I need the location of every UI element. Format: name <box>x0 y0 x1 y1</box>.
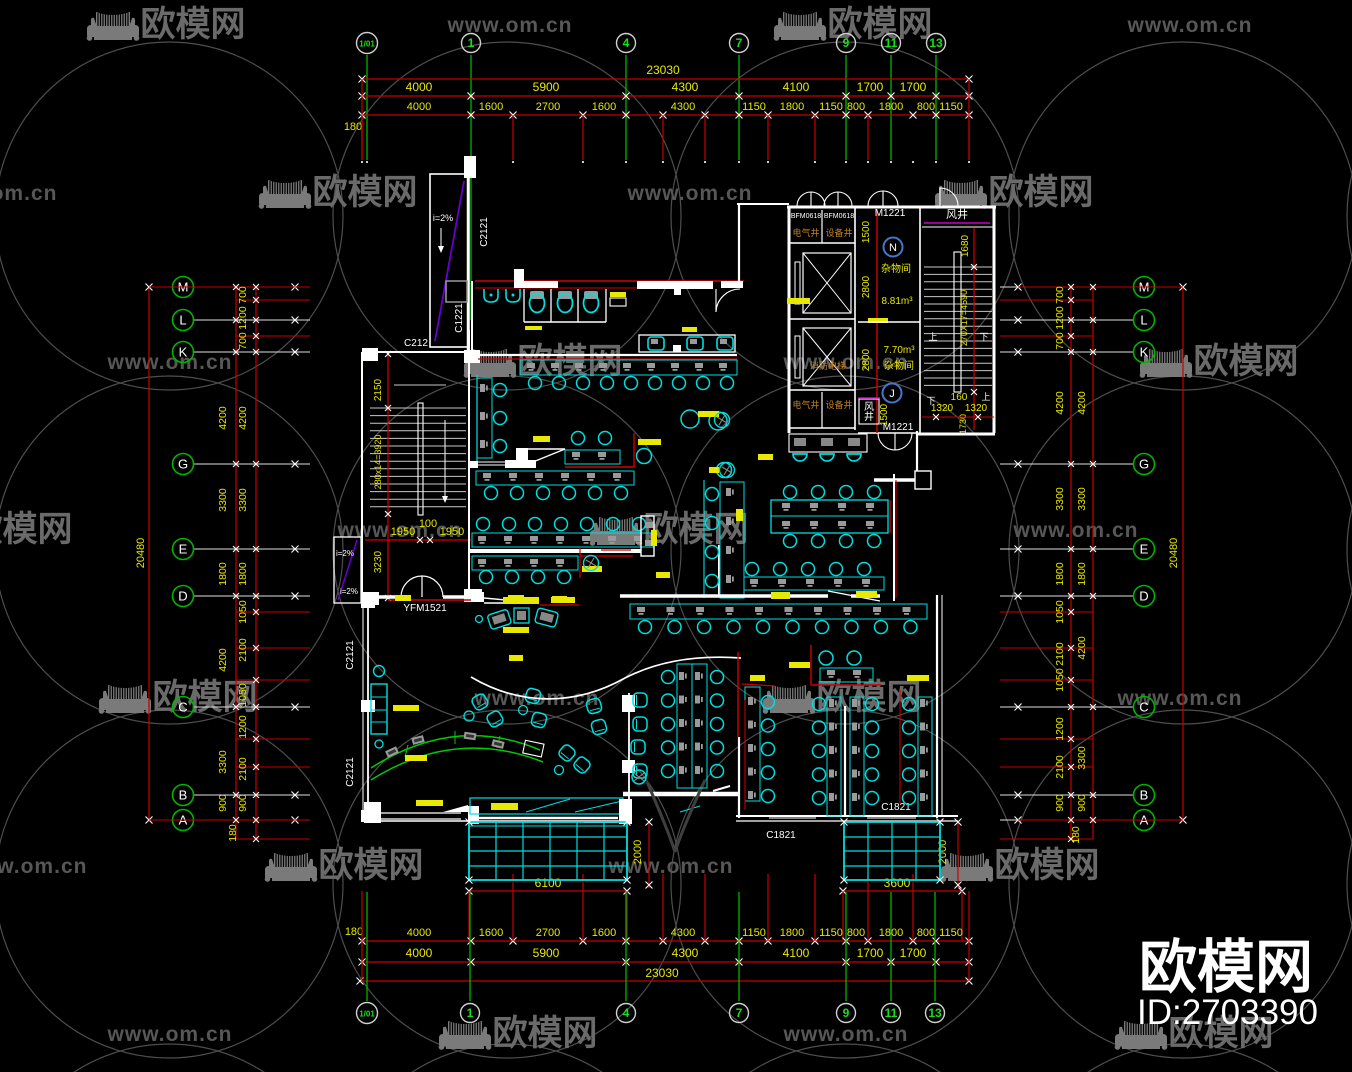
svg-text:700: 700 <box>1054 286 1066 304</box>
svg-text:1800: 1800 <box>780 927 804 939</box>
svg-text:1: 1 <box>467 1006 474 1020</box>
svg-text:风井: 风井 <box>946 207 968 221</box>
svg-text:1950: 1950 <box>391 526 415 538</box>
svg-text:4300: 4300 <box>671 927 695 939</box>
svg-text:1950: 1950 <box>440 526 464 538</box>
svg-text:3300: 3300 <box>1076 487 1088 511</box>
svg-text:杂物间: 杂物间 <box>884 359 914 372</box>
svg-text:欧模网: 欧模网 <box>492 1014 597 1053</box>
svg-text:1800: 1800 <box>780 101 804 113</box>
svg-text:1/01: 1/01 <box>359 40 375 49</box>
svg-text:上: 上 <box>981 392 990 402</box>
svg-text:180: 180 <box>1070 826 1082 844</box>
svg-text:www.om.cn: www.om.cn <box>107 351 233 374</box>
svg-text:www.om.cn: www.om.cn <box>1117 687 1243 710</box>
svg-text:4000: 4000 <box>406 80 433 94</box>
svg-text:2800: 2800 <box>861 348 872 371</box>
svg-text:800: 800 <box>847 927 865 939</box>
svg-text:1800: 1800 <box>1076 562 1088 586</box>
svg-text:180: 180 <box>345 926 363 938</box>
svg-text:900: 900 <box>217 794 229 812</box>
svg-text:1800: 1800 <box>237 562 249 586</box>
svg-text:设备井: 设备井 <box>825 399 852 410</box>
svg-text:www.om.cn: www.om.cn <box>447 14 573 37</box>
svg-text:3300: 3300 <box>237 488 249 512</box>
svg-text:700: 700 <box>237 332 249 350</box>
svg-text:1150: 1150 <box>742 101 766 113</box>
svg-text:1200: 1200 <box>1054 306 1066 330</box>
svg-text:3230: 3230 <box>373 550 384 573</box>
svg-text:i=2%: i=2% <box>340 587 358 596</box>
svg-text:280x14=3920: 280x14=3920 <box>373 435 383 490</box>
svg-text:1: 1 <box>468 36 475 50</box>
svg-text:4300: 4300 <box>671 101 695 113</box>
svg-text:1700: 1700 <box>857 80 884 94</box>
svg-text:1200: 1200 <box>237 306 249 330</box>
svg-text:1200: 1200 <box>1054 717 1066 741</box>
svg-text:2100: 2100 <box>1054 642 1066 666</box>
svg-text:www.om.cn: www.om.cn <box>1013 519 1139 542</box>
svg-text:欧模网: 欧模网 <box>1139 935 1313 1000</box>
svg-text:1800: 1800 <box>1054 562 1066 586</box>
svg-text:1150: 1150 <box>939 101 963 113</box>
svg-text:欧模网: 欧模网 <box>140 5 245 44</box>
svg-text:B: B <box>179 788 188 803</box>
svg-text:欧模网: 欧模网 <box>643 510 748 549</box>
svg-text:1600: 1600 <box>592 927 616 939</box>
svg-text:4000: 4000 <box>406 946 433 960</box>
svg-text:1050: 1050 <box>237 600 249 624</box>
svg-text:D: D <box>1139 589 1148 604</box>
svg-text:180: 180 <box>227 824 239 842</box>
svg-text:7: 7 <box>736 36 743 50</box>
svg-text:1150: 1150 <box>742 927 766 939</box>
svg-text:BFM0618: BFM0618 <box>824 213 854 220</box>
svg-text:3300: 3300 <box>217 488 229 512</box>
svg-text:上: 上 <box>928 332 937 342</box>
svg-text:1600: 1600 <box>479 927 503 939</box>
svg-text:2100: 2100 <box>1054 755 1066 779</box>
svg-text:9: 9 <box>843 1006 850 1020</box>
svg-text:700: 700 <box>237 286 249 304</box>
svg-text:K: K <box>179 345 188 360</box>
svg-text:4200: 4200 <box>217 406 229 430</box>
svg-text:4300: 4300 <box>672 946 699 960</box>
svg-text:900: 900 <box>1054 794 1066 812</box>
svg-text:9: 9 <box>843 36 850 50</box>
svg-text:4300: 4300 <box>672 80 699 94</box>
svg-text:11: 11 <box>885 36 898 50</box>
svg-text:4200: 4200 <box>217 648 229 672</box>
svg-text:C1821: C1821 <box>766 830 796 841</box>
svg-text:270X17=4590: 270X17=4590 <box>959 290 969 346</box>
svg-text:1050: 1050 <box>237 683 249 707</box>
svg-text:欧模网: 欧模网 <box>312 173 417 212</box>
svg-text:160: 160 <box>951 392 968 403</box>
svg-text:电气井: 电气井 <box>792 227 819 238</box>
svg-text:1050: 1050 <box>1054 668 1066 692</box>
svg-text:4000: 4000 <box>407 927 431 939</box>
svg-text:5900: 5900 <box>533 80 560 94</box>
svg-text:www.om.cn: www.om.cn <box>627 182 753 205</box>
svg-text:1700: 1700 <box>857 946 884 960</box>
svg-text:1600: 1600 <box>479 101 503 113</box>
svg-text:i=2%: i=2% <box>336 549 354 558</box>
svg-text:4200: 4200 <box>1054 391 1066 415</box>
svg-text:E: E <box>179 542 188 557</box>
svg-text:3600: 3600 <box>884 876 911 890</box>
svg-text:C: C <box>178 700 187 715</box>
svg-text:www.om.cn: www.om.cn <box>107 1023 233 1046</box>
svg-text:C1221: C1221 <box>454 303 465 333</box>
svg-text:2700: 2700 <box>536 101 560 113</box>
svg-text:4: 4 <box>623 1006 630 1020</box>
svg-text:1150: 1150 <box>939 927 963 939</box>
svg-text:下: 下 <box>979 332 988 342</box>
svg-text:L: L <box>179 313 186 328</box>
svg-text:设备井: 设备井 <box>825 227 852 238</box>
svg-text:1320: 1320 <box>931 403 954 414</box>
svg-text:1600: 1600 <box>592 101 616 113</box>
svg-text:4200: 4200 <box>1076 636 1088 660</box>
svg-text:C2121: C2121 <box>345 640 356 670</box>
svg-text:YFM1521: YFM1521 <box>403 603 447 614</box>
svg-text:2150: 2150 <box>373 378 384 401</box>
svg-text:电气井: 电气井 <box>792 399 819 410</box>
svg-text:C2121: C2121 <box>479 217 490 247</box>
svg-text:1150: 1150 <box>819 101 843 113</box>
svg-text:www.om.cn: www.om.cn <box>1127 14 1253 37</box>
svg-text:3300: 3300 <box>217 750 229 774</box>
svg-text:J: J <box>889 388 895 400</box>
svg-text:23030: 23030 <box>646 63 680 77</box>
svg-text:L: L <box>1140 313 1147 328</box>
svg-text:6100: 6100 <box>535 876 562 890</box>
svg-text:7.70m³: 7.70m³ <box>883 345 915 356</box>
svg-text:4200: 4200 <box>1076 391 1088 415</box>
svg-text:1800: 1800 <box>879 101 903 113</box>
svg-text:G: G <box>178 457 188 472</box>
svg-text:800: 800 <box>917 101 935 113</box>
svg-text:M1221: M1221 <box>875 208 906 219</box>
svg-text:K: K <box>1140 345 1149 360</box>
svg-text:1500: 1500 <box>861 220 872 243</box>
svg-text:2100: 2100 <box>237 757 249 781</box>
svg-text:4200: 4200 <box>237 406 249 430</box>
svg-text:2100: 2100 <box>237 638 249 662</box>
svg-text:www.om.cn: www.om.cn <box>0 855 87 878</box>
svg-text:1050: 1050 <box>1054 600 1066 624</box>
svg-text:13: 13 <box>928 1006 942 1020</box>
svg-text:4100: 4100 <box>783 80 810 94</box>
svg-text:欧模网: 欧模网 <box>0 510 73 549</box>
svg-text:3300: 3300 <box>1054 487 1066 511</box>
svg-text:欧模网: 欧模网 <box>1193 342 1298 381</box>
svg-text:BFM0618: BFM0618 <box>791 213 821 220</box>
svg-text:i=2%: i=2% <box>433 213 453 223</box>
svg-text:700: 700 <box>1054 332 1066 350</box>
svg-text:1700: 1700 <box>900 80 927 94</box>
svg-text:G: G <box>1139 457 1149 472</box>
svg-text:消防电梯: 消防电梯 <box>810 360 846 371</box>
svg-text:1200: 1200 <box>237 715 249 739</box>
svg-text:B: B <box>1140 788 1149 803</box>
svg-text:C212: C212 <box>404 338 428 349</box>
svg-text:20480: 20480 <box>1168 538 1180 569</box>
svg-text:800: 800 <box>847 101 865 113</box>
svg-text:8.81m³: 8.81m³ <box>881 296 913 307</box>
svg-text:2700: 2700 <box>536 927 560 939</box>
svg-text:www.om.cn: www.om.cn <box>0 182 57 205</box>
svg-text:1800: 1800 <box>217 562 229 586</box>
svg-text:4: 4 <box>623 36 630 50</box>
svg-text:1320: 1320 <box>965 403 988 414</box>
svg-text:11: 11 <box>885 1006 898 1020</box>
svg-text:100: 100 <box>419 518 437 530</box>
svg-text:13: 13 <box>929 36 943 50</box>
svg-text:2800: 2800 <box>861 275 872 298</box>
svg-text:1150: 1150 <box>819 927 843 939</box>
svg-text:欧模网: 欧模网 <box>988 173 1093 212</box>
svg-text:4100: 4100 <box>783 946 810 960</box>
svg-text:800: 800 <box>917 927 935 939</box>
svg-text:C: C <box>1139 700 1148 715</box>
svg-text:20480: 20480 <box>135 538 147 569</box>
svg-text:3300: 3300 <box>1076 746 1088 770</box>
svg-text:D: D <box>178 589 187 604</box>
svg-text:5900: 5900 <box>533 946 560 960</box>
svg-text:900: 900 <box>1076 794 1088 812</box>
svg-text:ID:2703390: ID:2703390 <box>1137 993 1318 1032</box>
svg-text:2000: 2000 <box>632 840 644 864</box>
svg-text:C2121: C2121 <box>345 757 356 787</box>
svg-text:井: 井 <box>864 410 874 423</box>
svg-text:N: N <box>889 242 897 254</box>
svg-text:4000: 4000 <box>407 101 431 113</box>
svg-text:M1221: M1221 <box>883 422 914 433</box>
svg-text:欧模网: 欧模网 <box>318 846 423 885</box>
svg-text:180: 180 <box>344 121 362 133</box>
svg-text:2000: 2000 <box>937 840 949 864</box>
svg-text:欧模网: 欧模网 <box>994 846 1099 885</box>
svg-text:900: 900 <box>237 794 249 812</box>
svg-text:1680: 1680 <box>960 234 971 257</box>
svg-text:www.om.cn: www.om.cn <box>783 1023 909 1046</box>
svg-text:7: 7 <box>736 1006 743 1020</box>
svg-text:杂物间: 杂物间 <box>881 262 911 275</box>
svg-text:1/01: 1/01 <box>359 1010 375 1019</box>
svg-text:23030: 23030 <box>645 966 679 980</box>
svg-text:E: E <box>1140 542 1149 557</box>
svg-text:1700: 1700 <box>900 946 927 960</box>
